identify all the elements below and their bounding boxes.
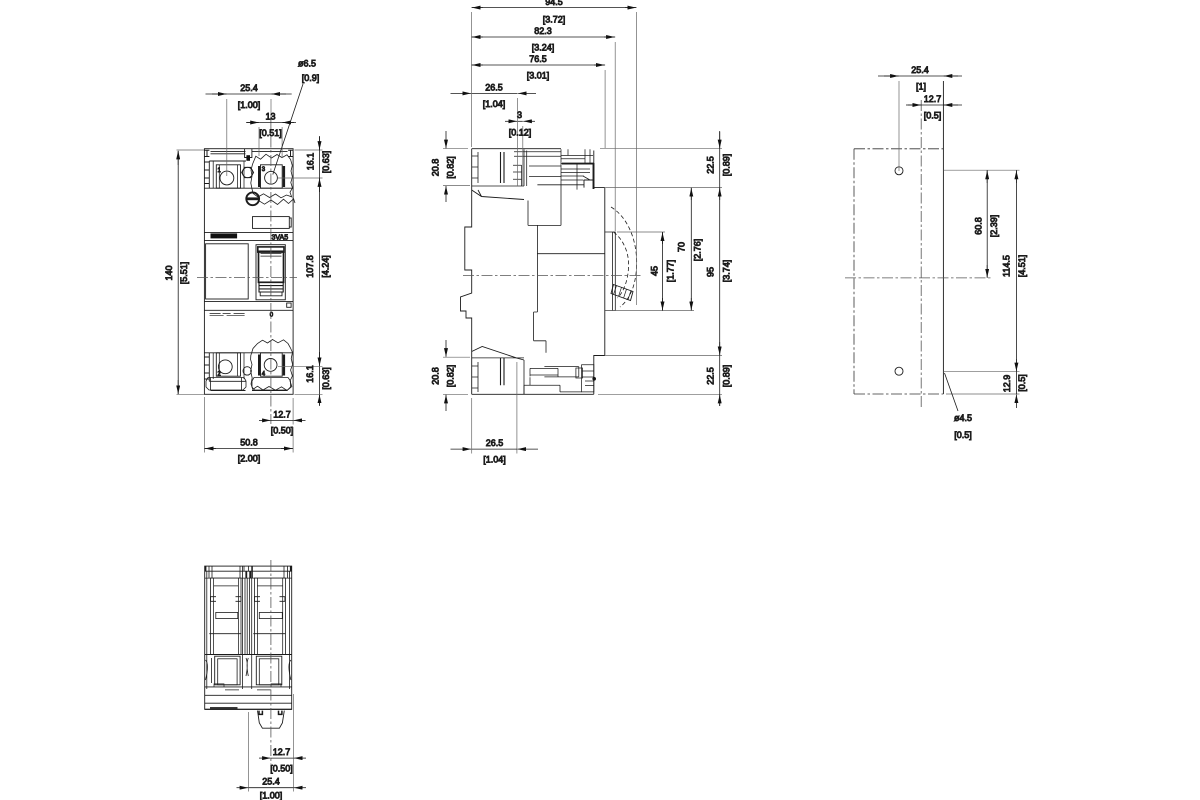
svg-text:13: 13 [265,112,275,122]
svg-text:[0.82]: [0.82] [446,156,456,179]
svg-text:20.8: 20.8 [431,159,441,177]
svg-text:26.5: 26.5 [485,83,503,93]
svg-text:12.7: 12.7 [924,94,942,104]
svg-text:[0.63]: [0.63] [321,151,331,174]
svg-text:[2.00]: [2.00] [238,454,261,464]
svg-text:20.8: 20.8 [431,367,441,385]
svg-text:60.8: 60.8 [974,217,984,235]
svg-text:16.1: 16.1 [305,365,315,383]
svg-text:[0.5]: [0.5] [1017,374,1027,392]
svg-text:[1.04]: [1.04] [483,99,506,109]
svg-text:[0.50]: [0.50] [270,764,293,774]
svg-text:[0.89]: [0.89] [722,154,732,177]
svg-text:50.8: 50.8 [240,438,258,448]
svg-text:[1]: [1] [916,82,926,92]
svg-text:[0.9]: [0.9] [302,73,320,83]
svg-text:26.5: 26.5 [486,438,504,448]
svg-text:[0.51]: [0.51] [259,128,282,138]
svg-text:16.1: 16.1 [306,153,316,171]
svg-text:[1.00]: [1.00] [238,100,261,110]
svg-text:[0.82]: [0.82] [446,365,456,388]
svg-text:[0.63]: [0.63] [321,367,331,390]
svg-text:76.5: 76.5 [529,54,547,64]
svg-text:[3.74]: [3.74] [722,260,732,283]
svg-text:114.5: 114.5 [1002,255,1012,277]
svg-text:25.4: 25.4 [911,65,929,75]
svg-text:[1.00]: [1.00] [260,791,283,800]
svg-text:140: 140 [164,265,174,280]
svg-text:[3.24]: [3.24] [532,43,555,53]
svg-text:[1.77]: [1.77] [666,260,676,283]
svg-text:[1.04]: [1.04] [483,455,506,465]
svg-text:25.4: 25.4 [240,83,258,93]
svg-text:[4.51]: [4.51] [1017,255,1027,278]
svg-text:0: 0 [270,313,274,319]
svg-text:94.5: 94.5 [545,0,563,7]
svg-text:22.5: 22.5 [706,156,716,174]
svg-text:[5.51]: [5.51] [179,262,189,285]
svg-text:12.7: 12.7 [273,410,291,420]
svg-text:70: 70 [677,242,687,252]
svg-text:ø4.5: ø4.5 [954,413,972,423]
svg-text:[2.76]: [2.76] [693,239,703,262]
svg-text:[2.39]: [2.39] [989,215,999,238]
svg-text:[0.89]: [0.89] [722,365,732,388]
svg-text:1: 1 [218,168,222,174]
svg-text:3: 3 [517,110,522,120]
svg-text:ø6.5: ø6.5 [298,59,316,69]
svg-text:[0.5]: [0.5] [924,111,942,121]
svg-text:3VA5: 3VA5 [272,235,289,242]
svg-text:[0.50]: [0.50] [271,426,294,436]
svg-text:22.5: 22.5 [706,367,716,385]
svg-text:[0.12]: [0.12] [509,128,532,138]
svg-text:95: 95 [706,267,716,277]
svg-text:[0.5]: [0.5] [954,430,972,440]
svg-text:25.4: 25.4 [262,777,280,787]
svg-text:12.7: 12.7 [273,747,291,757]
svg-text:82.3: 82.3 [534,26,552,36]
svg-text:[3.72]: [3.72] [543,15,566,25]
svg-text:45: 45 [650,266,660,276]
svg-text:107.8: 107.8 [305,255,315,278]
svg-text:3: 3 [262,167,266,173]
svg-text:[4.24]: [4.24] [321,255,331,278]
svg-text:[3.01]: [3.01] [527,71,550,81]
svg-text:12.9: 12.9 [1002,375,1012,393]
